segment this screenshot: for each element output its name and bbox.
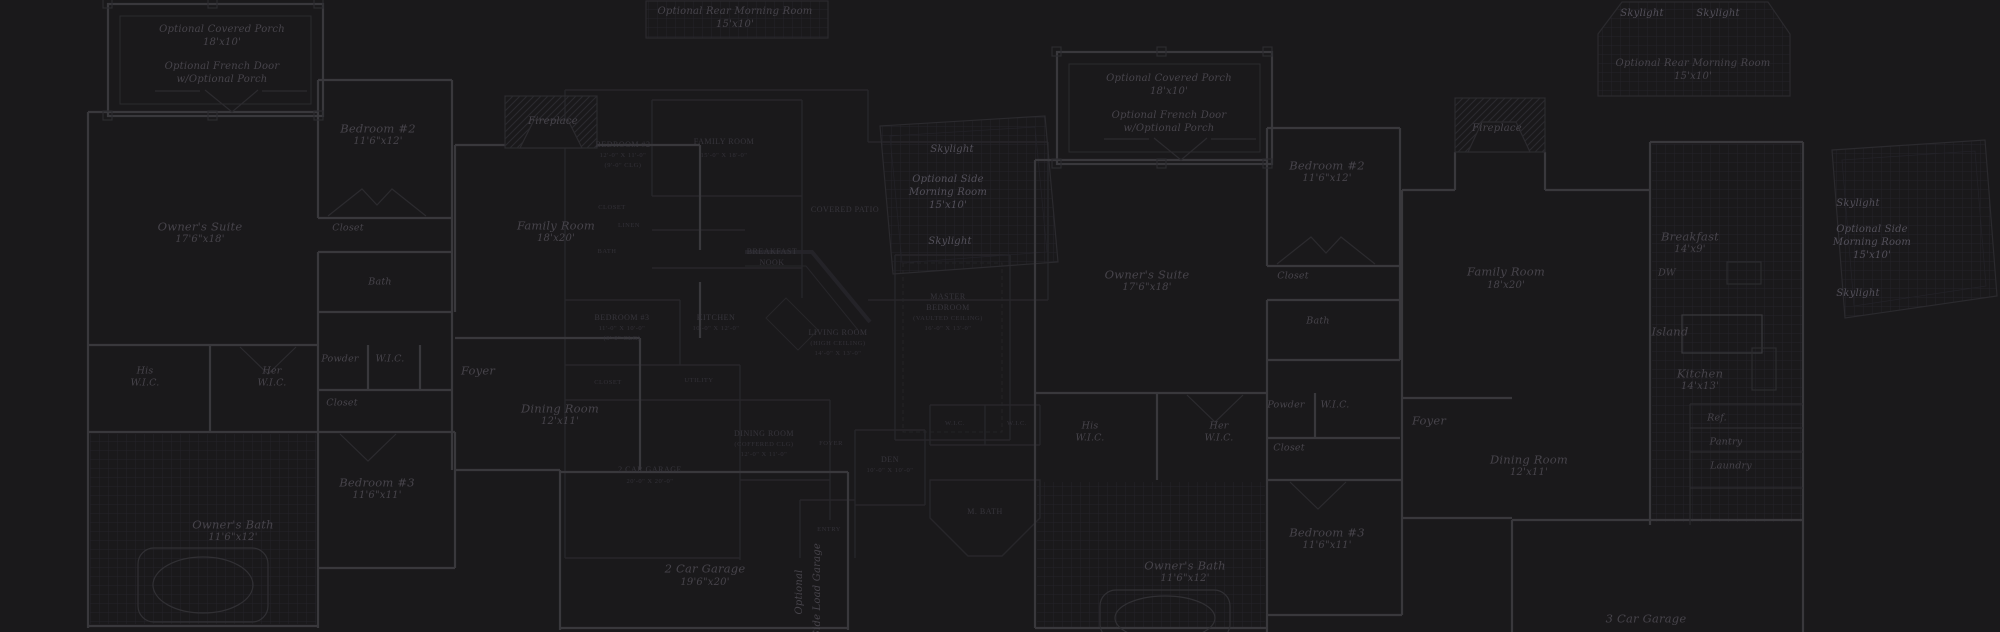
label-right-owners-suite-dims: 17'6"x18': [1122, 283, 1171, 293]
label-left-owners-suite-dims: 17'6"x18': [175, 235, 224, 245]
label-right-hall-closet: Closet: [1273, 443, 1305, 453]
label-right-side-morning-line2: Morning Room: [1833, 238, 1911, 248]
label-left-rear-morning-dims: 15'x10': [716, 20, 754, 30]
label-left-family-room-name: Family Room: [517, 220, 595, 232]
label-mid-bedroom2-name: BEDROOM #2: [595, 141, 650, 149]
label-left-bedroom2-name: Bedroom #2: [340, 123, 415, 135]
label-right-island: Island: [1652, 326, 1689, 338]
label-left-dining-name: Dining Room: [521, 403, 599, 415]
label-right-laundry: Laundry: [1710, 461, 1752, 471]
label-mid-living-clg: (HIGH CEILING): [810, 341, 865, 348]
label-right-bedroom2-name: Bedroom #2: [1289, 160, 1364, 172]
label-right-dining-name: Dining Room: [1490, 454, 1568, 466]
label-left-fireplace: Fireplace: [528, 117, 578, 127]
label-left-her-wic-line2: W.I.C.: [257, 378, 286, 388]
label-right-side-morning-line1: Optional Side: [1836, 225, 1908, 235]
label-right-pantry: Pantry: [1710, 437, 1743, 447]
label-right-breakfast-dims: 14'x9': [1674, 245, 1705, 255]
label-right-ref: Ref.: [1707, 413, 1727, 423]
label-left-side-morning-line2: Morning Room: [909, 188, 987, 198]
label-right-fireplace: Fireplace: [1472, 124, 1522, 134]
label-left-rear-morning-title: Optional Rear Morning Room: [658, 7, 813, 17]
label-mid-wic-right: W.I.C.: [1007, 421, 1027, 428]
label-left-side-load-garage-line1: Optional: [795, 569, 805, 614]
label-mid-breakfast-name: BREAKFAST: [747, 248, 798, 256]
label-mid-bath: BATH: [598, 249, 617, 256]
floor-plan-walls: [0, 0, 2000, 632]
label-left-porch-title: Optional Covered Porch: [159, 25, 285, 35]
label-mid-closet2: CLOSET: [594, 380, 622, 387]
label-left-skylight-bottom: Skylight: [928, 237, 971, 247]
label-mid-wic-left: W.I.C.: [945, 421, 965, 428]
label-left-garage-name: 2 Car Garage: [665, 563, 746, 575]
label-left-french-door-line2: w/Optional Porch: [177, 75, 268, 85]
label-left-bedroom3-dims: 11'6"x11': [352, 491, 401, 501]
label-left-skylight-top: Skylight: [930, 145, 973, 155]
label-right-bedroom2-dims: 11'6"x12': [1302, 174, 1351, 184]
label-mid-dining-dims: 12'-0" X 11'-0": [741, 452, 788, 459]
label-right-wic: W.I.C.: [1320, 400, 1349, 410]
label-right-family-room-dims: 18'x20': [1487, 281, 1525, 291]
label-mid-entry: ENTRY: [817, 527, 841, 534]
label-right-dw: DW: [1658, 268, 1676, 278]
label-right-family-room-name: Family Room: [1467, 266, 1545, 278]
label-right-skylight-bottom: Skylight: [1836, 289, 1879, 299]
label-right-dining-dims: 12'x11': [1510, 468, 1548, 478]
label-right-kitchen-dims: 14'x13': [1681, 382, 1719, 392]
label-right-breakfast-name: Breakfast: [1661, 231, 1719, 243]
label-right-skylight-top: Skylight: [1836, 199, 1879, 209]
label-right-french-door-line1: Optional French Door: [1112, 111, 1227, 121]
label-mid-covered-patio: COVERED PATIO: [811, 206, 879, 214]
label-mid-living-dims: 14'-0" X 13'-0": [815, 351, 862, 358]
label-right-garage-name: 3 Car Garage: [1606, 613, 1687, 625]
label-right-her-wic-line1: Her: [1209, 421, 1228, 431]
label-left-hall-closet: Closet: [326, 398, 358, 408]
label-left-bath: Bath: [368, 277, 391, 287]
label-right-bedroom2-closet: Closet: [1277, 271, 1309, 281]
label-left-his-wic-line2: W.I.C.: [130, 378, 159, 388]
label-mid-family-dims: 15'-0" X 18'-0": [701, 153, 748, 160]
label-left-owners-suite-name: Owner's Suite: [158, 221, 243, 233]
label-right-owners-suite-name: Owner's Suite: [1105, 269, 1190, 281]
label-left-french-door-line1: Optional French Door: [165, 62, 280, 72]
label-mid-breakfast-name2: NOOK: [759, 259, 784, 267]
label-mid-master-name1: MASTER: [930, 293, 965, 301]
label-left-wic: W.I.C.: [375, 354, 404, 364]
label-left-foyer: Foyer: [461, 365, 495, 377]
label-mid-master-clg: (VAULTED CEILING): [913, 316, 983, 323]
label-mid-living-name: LIVING ROOM: [808, 329, 867, 337]
floor-plan-collage: Optional Covered Porch 18'x10' Optional …: [0, 0, 2000, 632]
label-mid-utility: UTILITY: [684, 378, 713, 385]
label-right-owners-bath-name: Owner's Bath: [1144, 560, 1225, 572]
label-left-her-wic-line1: Her: [262, 366, 281, 376]
label-right-foyer: Foyer: [1412, 415, 1446, 427]
label-mid-kitchen-dims: 10'-0" X 12'-0": [693, 326, 740, 333]
label-mid-bedroom3-clg: (9'-0" CLG): [604, 336, 641, 343]
label-mid-den-dims: 10'-0" X 10'-0": [867, 468, 914, 475]
label-mid-bedroom3-dims: 11'-0" X 10'-0": [599, 326, 646, 333]
label-right-porch-dims: 18'x10': [1150, 87, 1188, 97]
label-left-bedroom3-name: Bedroom #3: [339, 477, 414, 489]
label-left-bedroom2-dims: 11'6"x12': [353, 137, 402, 147]
label-right-his-wic-line1: His: [1082, 421, 1099, 431]
label-right-bedroom3-dims: 11'6"x11': [1302, 541, 1351, 551]
label-right-rear-skylight-right: Skylight: [1696, 9, 1739, 19]
label-mid-closet: CLOSET: [598, 205, 626, 212]
label-mid-den-name: DEN: [881, 456, 899, 464]
label-mid-linen: LINEN: [618, 223, 640, 230]
label-right-kitchen-name: Kitchen: [1677, 368, 1723, 380]
label-mid-master-bath: M. BATH: [967, 508, 1003, 516]
label-left-his-wic-line1: His: [137, 366, 154, 376]
label-mid-master-dims: 16'-0" X 13'-0": [925, 326, 972, 333]
label-left-bedroom2-closet: Closet: [332, 223, 364, 233]
label-mid-garage-name: 2 CAR GARAGE: [618, 466, 682, 474]
label-left-porch-dims: 18'x10': [203, 38, 241, 48]
label-right-bath: Bath: [1306, 316, 1329, 326]
label-right-rear-morning-title: Optional Rear Morning Room: [1616, 59, 1771, 69]
label-left-side-load-garage-line2: Side Load Garage: [813, 543, 823, 632]
label-right-rear-skylight-left: Skylight: [1620, 9, 1663, 19]
label-left-powder: Powder: [321, 354, 358, 364]
label-left-side-morning-line1: Optional Side: [912, 175, 984, 185]
label-right-porch-title: Optional Covered Porch: [1106, 74, 1232, 84]
label-mid-master-name2: BEDROOM: [926, 304, 970, 312]
label-left-side-morning-dims: 15'x10': [929, 201, 967, 211]
label-mid-bedroom3-name: BEDROOM #3: [594, 314, 649, 322]
label-left-owners-bath-name: Owner's Bath: [192, 519, 273, 531]
label-mid-dining-clg: (COFFERED CLG): [734, 442, 793, 449]
label-right-bedroom3-name: Bedroom #3: [1289, 527, 1364, 539]
label-right-french-door-line2: w/Optional Porch: [1124, 124, 1215, 134]
label-mid-bedroom2-dims: 12'-0" X 11'-0": [600, 153, 647, 160]
label-mid-foyer: FOYER: [819, 441, 843, 448]
label-right-his-wic-line2: W.I.C.: [1075, 433, 1104, 443]
label-right-owners-bath-dims: 11'6"x12': [1160, 574, 1209, 584]
label-left-owners-bath-dims: 11'6"x12': [208, 533, 257, 543]
label-mid-dining-name: DINING ROOM: [734, 430, 794, 438]
label-left-family-room-dims: 18'x20': [537, 234, 575, 244]
label-mid-garage-dims: 20'-0" X 20'-0": [627, 479, 674, 486]
label-right-powder: Powder: [1267, 400, 1304, 410]
label-left-garage-dims: 19'6"x20': [680, 578, 729, 588]
label-right-side-morning-dims: 15'x10': [1853, 251, 1891, 261]
label-left-dining-dims: 12'x11': [541, 417, 579, 427]
label-right-rear-morning-dims: 15'x10': [1674, 72, 1712, 82]
label-mid-bedroom2-clg: (9'-0" CLG): [605, 163, 642, 170]
label-mid-kitchen-name: KITCHEN: [697, 314, 736, 322]
label-right-her-wic-line2: W.I.C.: [1204, 433, 1233, 443]
label-mid-family-name: FAMILY ROOM: [694, 138, 754, 146]
